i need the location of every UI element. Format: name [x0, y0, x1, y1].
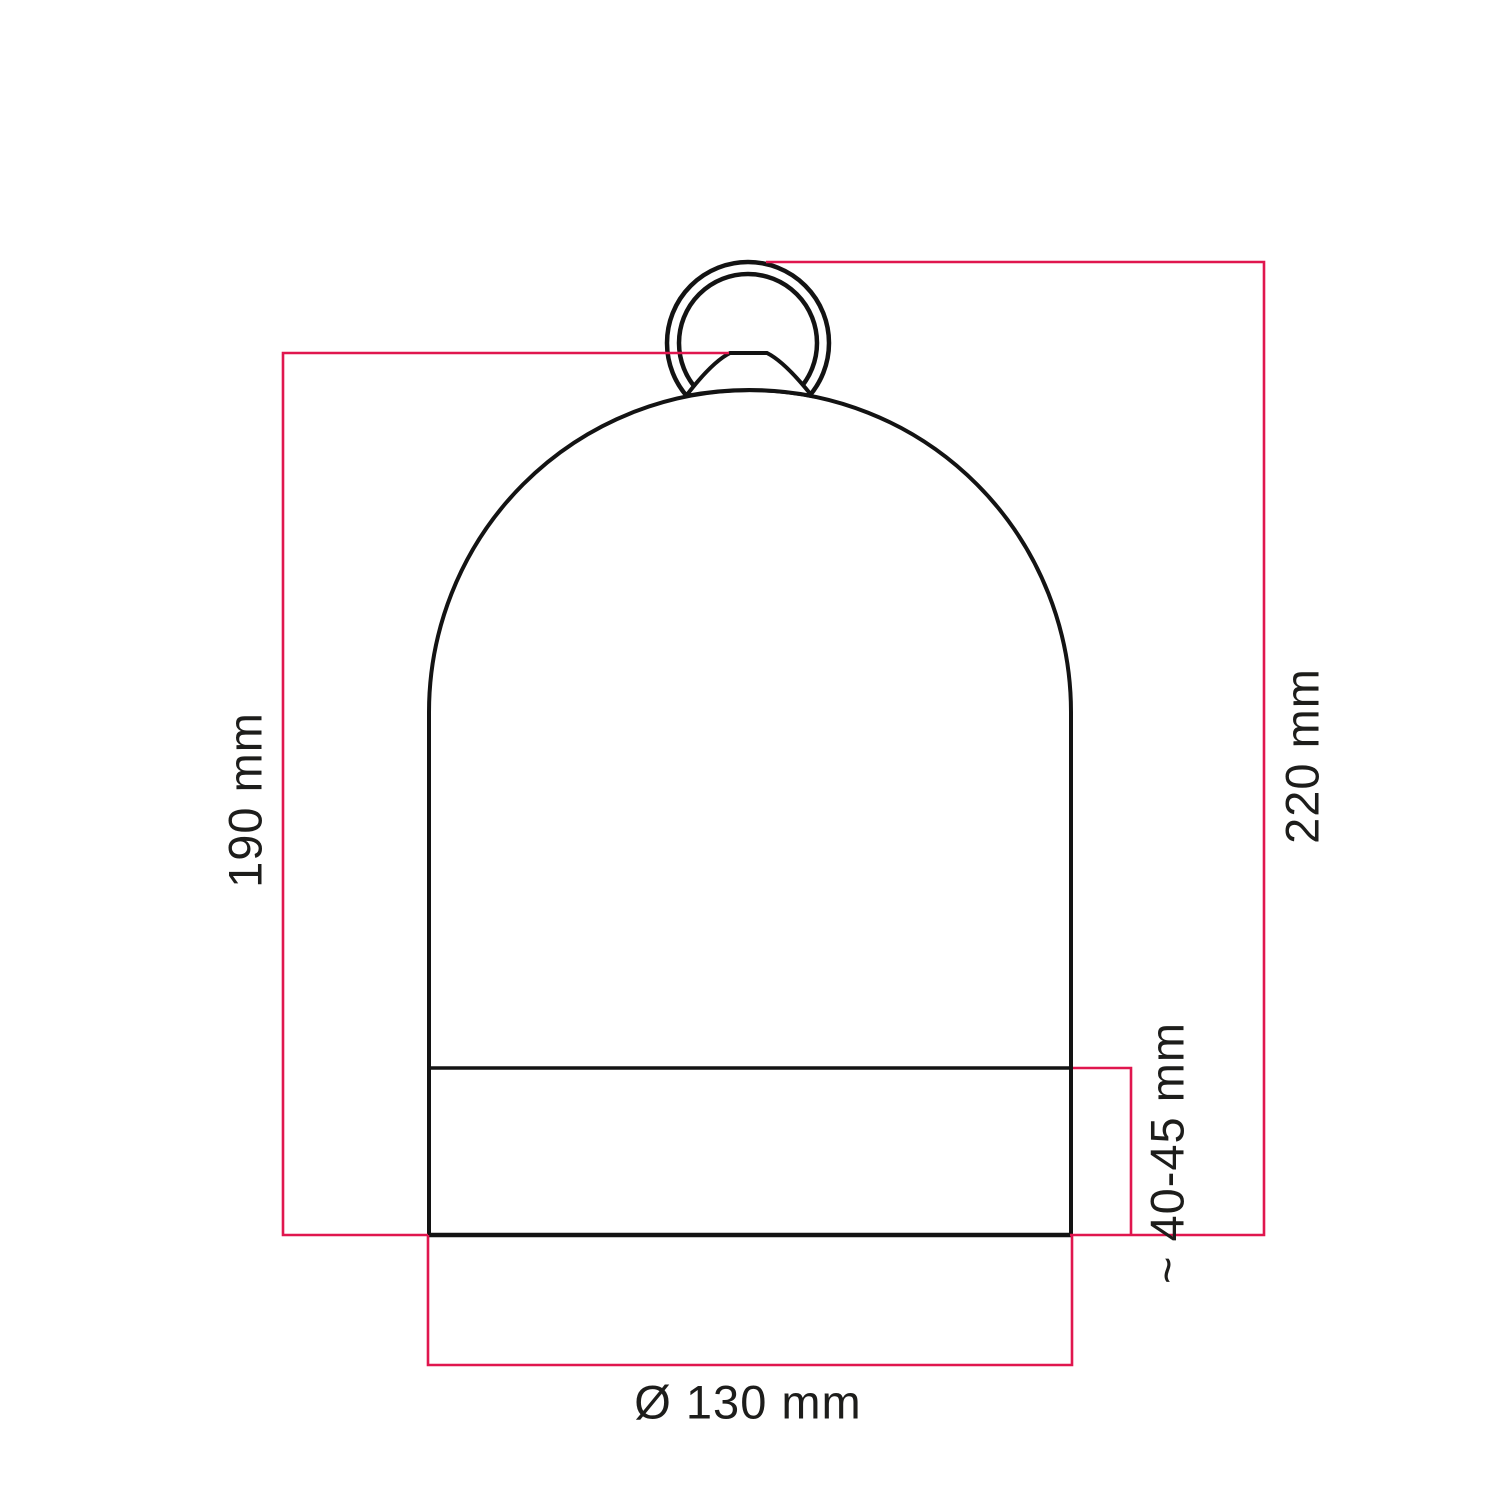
- shade-height-label: 190 mm: [222, 712, 269, 888]
- dimension-line-diameter: [428, 1235, 1072, 1365]
- bell-body-outline: [429, 390, 1071, 1235]
- base-height-label: ~ 40-45 mm: [1144, 1022, 1191, 1284]
- diameter-label: Ø 130 mm: [634, 1379, 861, 1426]
- dimension-line-40-45: [1073, 1068, 1131, 1235]
- total-height-label: 220 mm: [1279, 668, 1326, 844]
- bell-lampshade-dimension-drawing: 190 mm 220 mm ~ 40-45 mm Ø 130 mm: [0, 0, 1500, 1500]
